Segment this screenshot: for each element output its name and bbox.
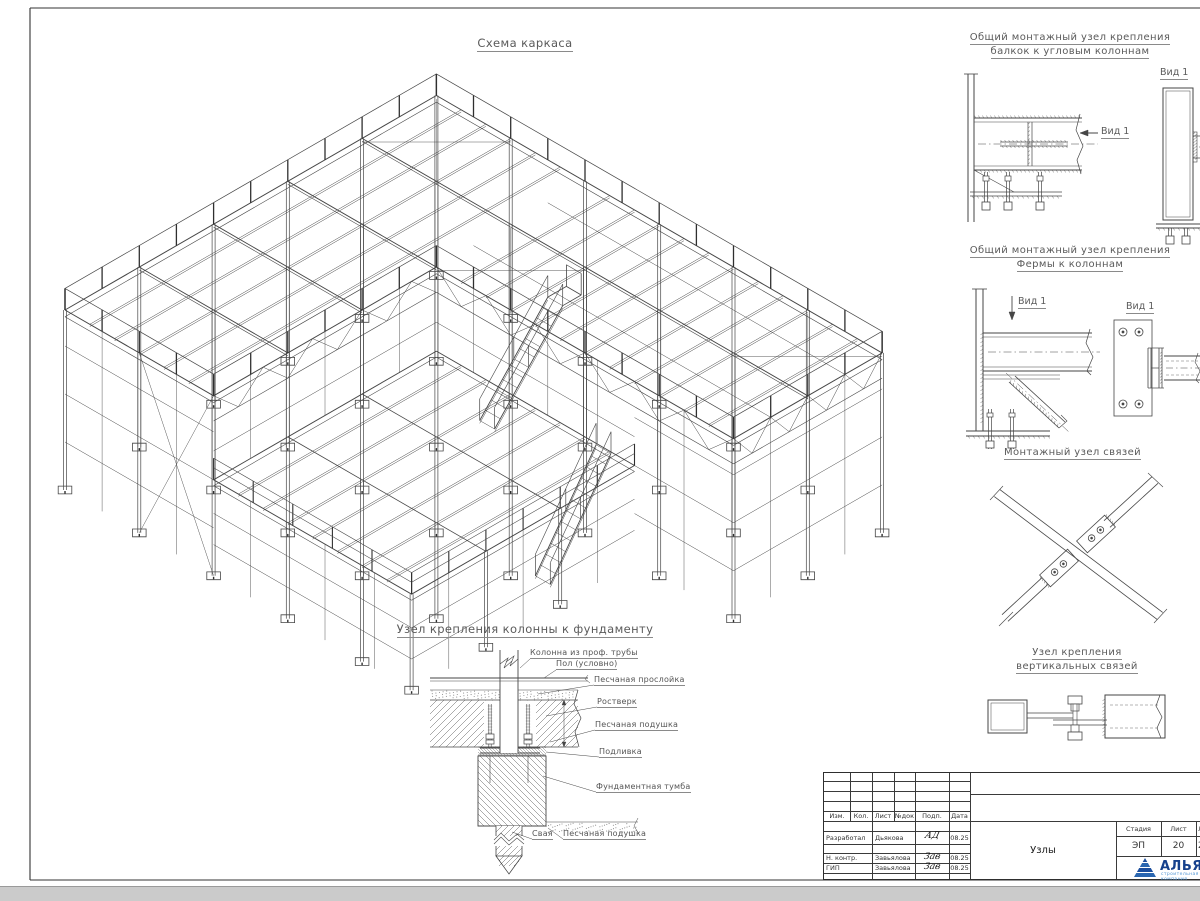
tb-row2-date: 08.25 <box>949 863 970 873</box>
pasteboard-strip <box>0 886 1200 901</box>
tb-row1-date: 08.25 <box>949 853 970 863</box>
detail-truss-column-view1 <box>1114 320 1200 416</box>
detail1-view-arrow-label: Вид 1 <box>1101 126 1129 137</box>
detail1-view-title: Вид 1 <box>1160 67 1188 78</box>
foundation-label-grout: Подливка <box>599 748 642 756</box>
tb-col-ndok: №док <box>894 811 915 821</box>
foundation-label-grillage: Ростверк <box>597 698 637 706</box>
detail2-view-arrow <box>1009 296 1015 320</box>
tb-stage-h3: Листов <box>1196 821 1200 836</box>
tb-row0-role: Разработал <box>824 831 874 844</box>
tb-stage-h2: Лист <box>1161 821 1196 836</box>
foundation-label-floor: Пол (условно) <box>556 660 617 668</box>
tb-row0-signature: АД <box>915 828 949 844</box>
tb-doc-title: Узлы <box>970 821 1116 879</box>
foundation-label-sand-cushion-2: Песчаная подушка <box>563 830 646 838</box>
foundation-label-sand-cushion-1: Песчаная подушка <box>595 721 678 729</box>
tb-col-izm: Изм. <box>824 811 850 821</box>
detail2-view-arrow-label: Вид 1 <box>1018 296 1046 307</box>
tb-col-podp: Подп. <box>915 811 949 821</box>
tb-row1-role: Н. контр. <box>824 853 874 863</box>
detail4-title-line2: вертикальных связей <box>988 661 1166 673</box>
tb-row1-name: Завьялова <box>873 853 917 863</box>
drawing-sheet: { "page": { "main_title": "Схема каркаса… <box>0 0 1200 900</box>
detail-beam-corner-column-view1 <box>1156 88 1200 244</box>
detail-bracing-splice <box>990 473 1167 626</box>
foundation-title: Узел крепления колонны к фундаменту <box>390 623 660 636</box>
tb-stage-value: ЭП <box>1116 836 1161 856</box>
logo-company-subtitle: строительная компания <box>1161 873 1200 882</box>
foundation-label-column: Колонна из проф. трубы <box>530 649 638 657</box>
alliance-logo-icon <box>1134 858 1156 877</box>
foundation-label-sand-interlayer: Песчаная прослойка <box>594 676 685 684</box>
foundation-label-pedestal: Фундаментная тумба <box>596 783 691 791</box>
frame-scheme-isometric <box>58 74 889 694</box>
detail3-title: Монтажный узел связей <box>975 447 1170 459</box>
detail1-title-line2: балкок к угловым колоннам <box>955 46 1185 58</box>
tb-row2-role: ГИП <box>824 863 874 873</box>
main-title: Схема каркаса <box>445 37 605 50</box>
tb-stage-h1: Стадия <box>1116 821 1161 836</box>
tb-row2-name: Завьялова <box>873 863 917 873</box>
title-block: Изм. Кол. Лист №док Подп. Дата Разработа… <box>823 772 1200 880</box>
detail4-title-line1: Узел крепления <box>988 647 1166 659</box>
tb-row0-name: Дьякова <box>873 831 917 844</box>
detail-beam-to-corner-column <box>964 74 1098 222</box>
tb-sheet-number: 20 <box>1161 836 1196 856</box>
detail1-title-line1: Общий монтажный узел крепления <box>955 32 1185 44</box>
foundation-label-pile: Свая <box>532 830 553 838</box>
tb-col-kol: Кол. <box>850 811 872 821</box>
detail-truss-to-column <box>966 289 1100 449</box>
tb-sheet-total: 2 <box>1196 836 1200 856</box>
detail-vertical-bracing-node <box>988 695 1165 740</box>
tb-col-list: Лист <box>872 811 894 821</box>
tb-row0-date: 08.25 <box>949 831 970 844</box>
detail1-view-arrow <box>1080 130 1098 136</box>
detail2-view-title: Вид 1 <box>1126 301 1154 312</box>
detail2-title-line1: Общий монтажный узел крепления <box>955 245 1185 257</box>
detail2-title-line2: Фермы к колоннам <box>955 259 1185 271</box>
tb-col-data: Дата <box>949 811 970 821</box>
tb-row2-signature: Зав <box>915 860 949 873</box>
